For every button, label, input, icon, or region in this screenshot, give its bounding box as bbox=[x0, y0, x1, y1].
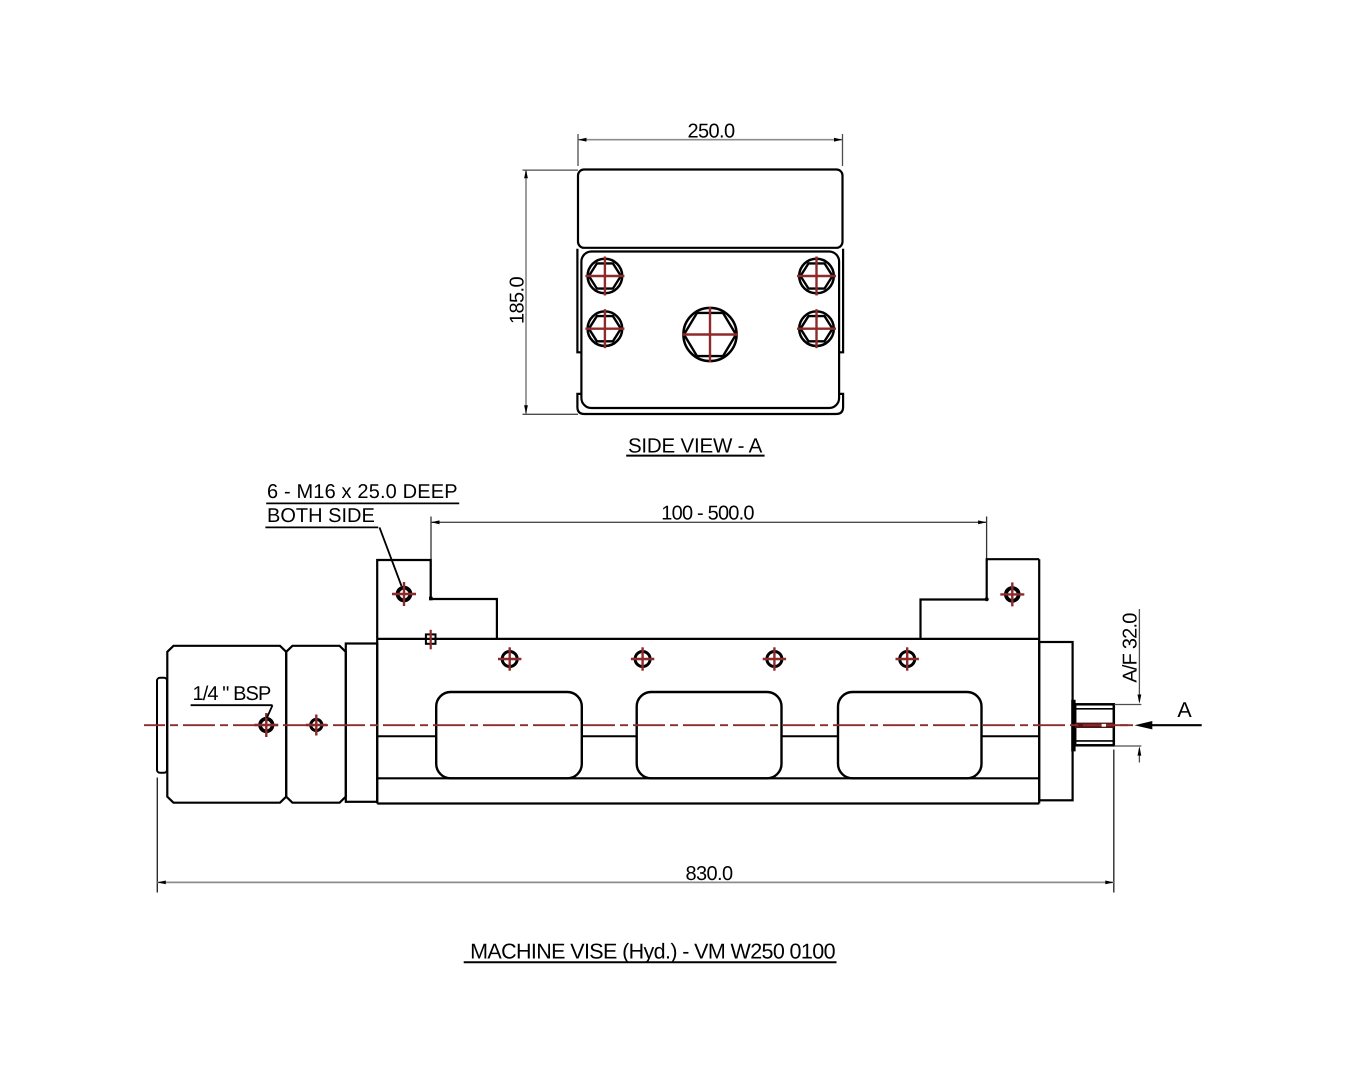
svg-text:A/F 32.0: A/F 32.0 bbox=[1120, 613, 1142, 683]
svg-text:830.0: 830.0 bbox=[685, 863, 733, 885]
svg-text:1/4 " BSP: 1/4 " BSP bbox=[193, 683, 271, 705]
svg-text:6 - M16 x 25.0 DEEP: 6 - M16 x 25.0 DEEP bbox=[267, 481, 458, 503]
svg-text:A: A bbox=[1177, 698, 1192, 722]
svg-text:BOTH SIDE: BOTH SIDE bbox=[267, 505, 375, 527]
svg-text:100 - 500.0: 100 - 500.0 bbox=[661, 503, 754, 525]
svg-text:MACHINE VISE (Hyd.) - VM W250: MACHINE VISE (Hyd.) - VM W250 0100 bbox=[470, 939, 835, 963]
svg-text:SIDE VIEW - A: SIDE VIEW - A bbox=[628, 434, 763, 457]
